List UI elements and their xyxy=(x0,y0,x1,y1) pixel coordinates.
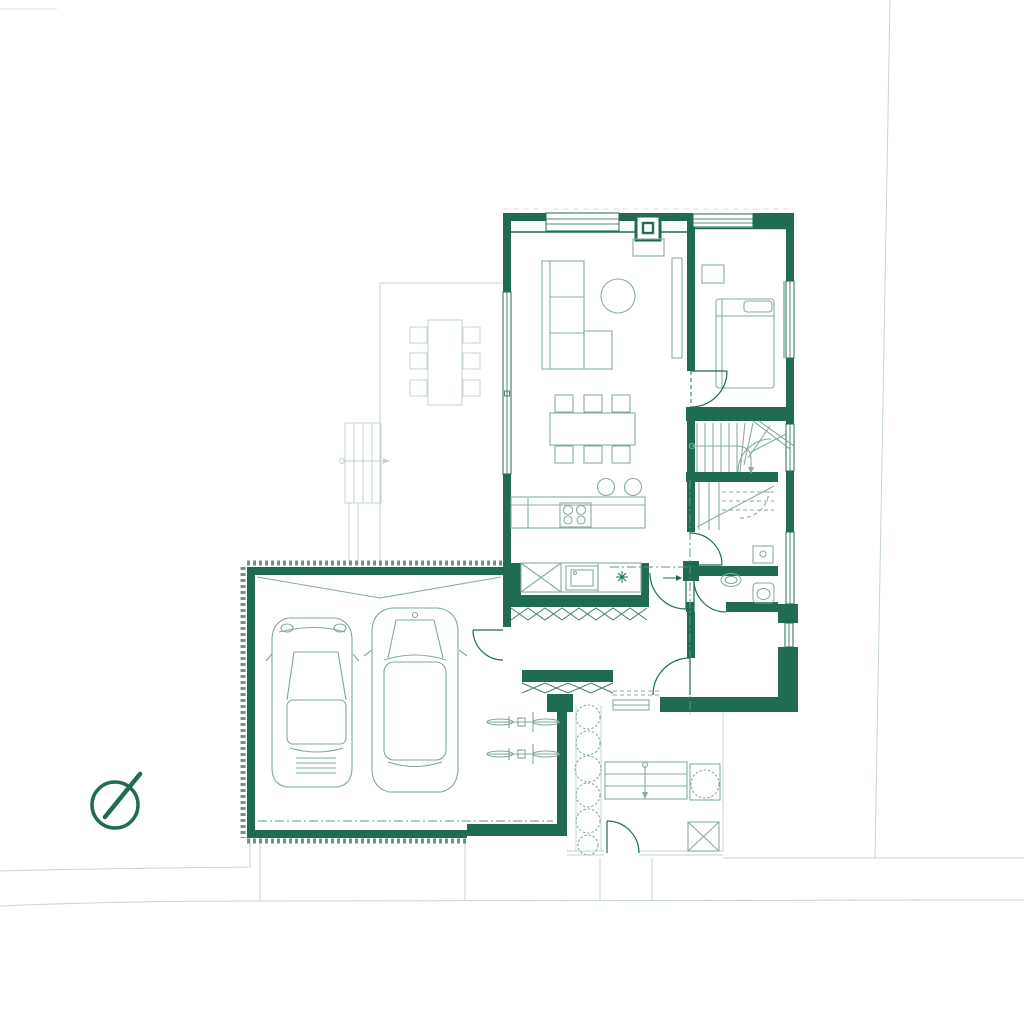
asterisk-symbol xyxy=(616,571,628,583)
fireplace xyxy=(633,239,664,256)
exterior-walls xyxy=(503,213,798,712)
interior-walls xyxy=(511,221,786,712)
coffee-table xyxy=(601,279,635,313)
garage-house-door xyxy=(473,630,503,660)
dining-table xyxy=(550,395,635,463)
terrace xyxy=(340,283,504,567)
garden-steps xyxy=(340,423,391,565)
window-west xyxy=(503,292,511,474)
toilet xyxy=(753,583,774,603)
bed xyxy=(716,299,774,388)
grate xyxy=(688,822,719,851)
planter-tree xyxy=(690,764,720,800)
washing-machine xyxy=(566,566,598,590)
walkline-arrow xyxy=(383,458,390,464)
window-north-living xyxy=(546,213,619,231)
outdoor-dining-table xyxy=(410,320,480,405)
hall-corridor-door xyxy=(653,658,690,695)
hob xyxy=(560,503,591,527)
car-sports xyxy=(266,618,359,787)
garage-ceiling-lines xyxy=(257,577,501,598)
driveway xyxy=(260,838,465,900)
walkway xyxy=(600,858,652,900)
shrub-row xyxy=(575,705,601,855)
compass xyxy=(92,774,140,828)
wc-hall-door xyxy=(694,580,726,612)
site-boundary xyxy=(0,0,1024,906)
pillow xyxy=(744,301,772,312)
floor-plan-page xyxy=(0,0,1024,1024)
entry-arrow xyxy=(676,575,682,581)
plumbing-wall xyxy=(688,566,778,576)
bicycle xyxy=(487,744,560,764)
bar-stool xyxy=(625,479,642,496)
kitchen-counter xyxy=(511,479,645,529)
floor-plan-canvas xyxy=(0,0,1024,1024)
window-east-hall xyxy=(785,623,793,647)
tv-cabinet xyxy=(672,258,682,358)
window-east-wc xyxy=(786,532,794,604)
steps-arrow xyxy=(642,792,648,799)
bicycle xyxy=(487,712,560,732)
window-east-bedroom xyxy=(784,281,794,358)
gate-door xyxy=(607,821,639,853)
boiler xyxy=(753,546,773,563)
car-sedan xyxy=(364,608,467,792)
bar-stool xyxy=(598,479,615,496)
entrance-porch xyxy=(511,608,660,710)
entry-steps xyxy=(605,762,687,799)
nightstand xyxy=(702,265,724,283)
understair-door xyxy=(690,533,722,565)
lower-flight-dashed xyxy=(697,482,774,530)
sofa xyxy=(542,261,612,369)
chimney xyxy=(636,216,660,240)
courtyard xyxy=(567,705,723,855)
window-north-bedroom xyxy=(693,214,753,227)
